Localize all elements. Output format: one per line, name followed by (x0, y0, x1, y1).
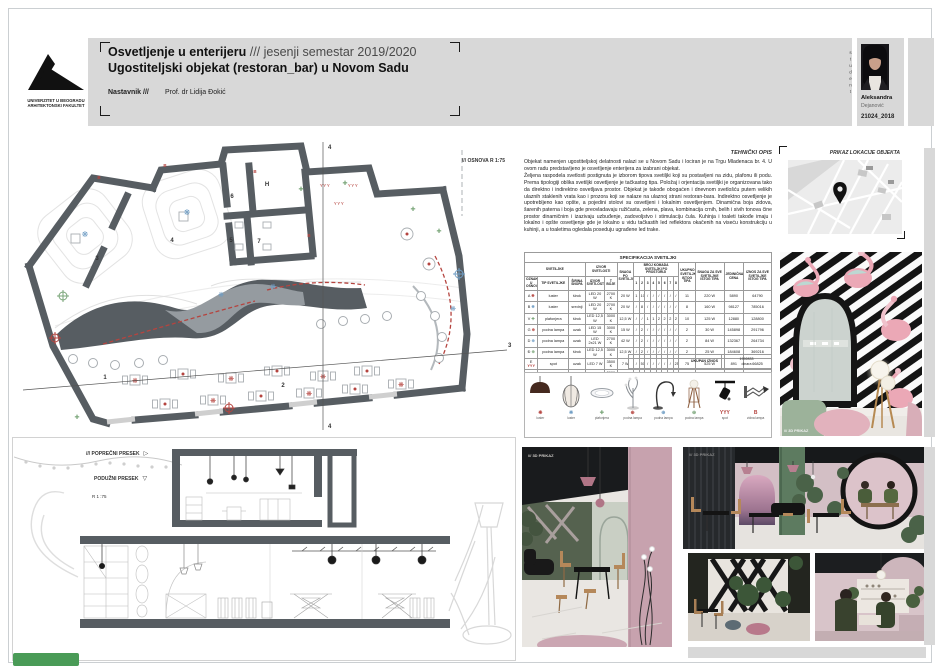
svg-text:❋: ❋ (398, 381, 404, 389)
transverse-section-drawing (172, 449, 357, 534)
student-last-name: Dejanović (861, 103, 884, 109)
page-title: Osvetljenje u enterijeru /// jesenji sem… (108, 45, 417, 59)
render-caption: /// 3D PRIKAZ (689, 452, 715, 457)
svg-text:❋: ❋ (270, 283, 276, 291)
svg-text:1: 1 (103, 375, 107, 381)
student-id: 21024_2018 (861, 114, 894, 120)
student-vertical-label: student (848, 50, 853, 96)
scissor-wall-lamp-icon (743, 376, 769, 410)
svg-text:YYY: YYY (334, 201, 345, 206)
faculty-logo-caption: UNIVERZITET U BEOGRADU ARHITEKTONSKI FAK… (10, 98, 102, 109)
spec-table-row: A ❋ luster širok LED 20 W 2700 K 20 W 11… (525, 290, 772, 301)
lamp-caption: podna lampa (654, 417, 672, 421)
title-suffix: /// jesenji semestar 2019/2020 (250, 45, 417, 59)
lamp-item: ❋ luster (525, 373, 556, 437)
sculptural-floor-lamp-icon (620, 376, 646, 410)
lamp-legend-panel: ❋ luster ❋ luster ✚ plafonjera (524, 372, 772, 438)
title-main: Osvetljenje u enterijeru (108, 45, 246, 59)
lamp-item: ⊕ podna lampa (617, 373, 648, 437)
render-interior-pattern-wall (688, 553, 810, 641)
bottom-accent-bar (688, 647, 926, 658)
section-mark: 4 (328, 145, 332, 151)
section-scale-label: R 1 :75 (92, 494, 107, 499)
total-sum-label: UKUPAN IZNOS (628, 354, 722, 369)
svg-text:4: 4 (170, 238, 174, 244)
pendant-cage-lamp-icon (558, 376, 584, 410)
total-sum-row: UKUPAN IZNOS 1992833 dinara (628, 354, 772, 369)
map-title: PRIKAZ LOKACIJE OBJEKTA (788, 150, 900, 156)
lamp-caption: luster (536, 417, 544, 421)
suspended-track (292, 547, 436, 551)
page-subtitle: Ugostiteljski objekat (restoran_bar) u N… (108, 61, 409, 75)
pendant-dome-lamp-icon (527, 376, 553, 410)
spec-table-row: D ⊕ podna lampa uzak LED 2x21 W 2700 K 4… (525, 336, 772, 347)
plant-lamp-sketch (445, 495, 513, 653)
svg-text:7: 7 (257, 239, 261, 245)
teacher-name: Prof. dr Lidija Đokić (165, 89, 226, 96)
svg-text:❋: ❋ (184, 208, 191, 217)
lamp-item: ✚ plafonjera (587, 373, 618, 437)
section-mark: 4 (328, 424, 332, 430)
section-pendants (207, 456, 295, 489)
svg-text:✚: ✚ (410, 206, 415, 213)
spec-table-row: V ✚ plafonjera širok LED 12,5 W 3000 K 1… (525, 313, 772, 324)
render-flamingo-wall: /// 3D PRIKAZ (780, 252, 922, 436)
svg-text:❋: ❋ (218, 291, 224, 299)
svg-text:❋: ❋ (228, 375, 234, 383)
svg-text:YYY: YYY (348, 183, 359, 188)
ceiling-ring-lamp-icon (589, 376, 615, 410)
tech-paragraph: Objekat namenjen ugostiteljskoj delatnos… (524, 159, 772, 172)
right-accent-strip (924, 447, 935, 645)
longitudinal-section-label: PODUŽNI PRESEK▽ (94, 475, 147, 482)
render-caption: /// 3D PRIKAZ (784, 429, 809, 433)
presentation-board: UNIVERZITET U BEOGRADU ARHITEKTONSKI FAK… (0, 0, 940, 671)
logo-line2: ARHITEKTONSKI FAKULTET (10, 103, 102, 108)
footer-badge (13, 653, 79, 666)
lamp-item: ❋ luster (556, 373, 587, 437)
svg-text:❋: ❋ (306, 390, 312, 398)
svg-text:B: B (253, 169, 257, 174)
spec-table-row: B ❋ luster srednji LED 20 W 2700 K 20 W … (525, 302, 772, 313)
long-section-furniture (262, 544, 416, 619)
tech-paragraph: Željena raspodela svetlosti postignuta j… (524, 173, 772, 233)
transverse-section-label: /// POPREČNI PRESEK▷ (86, 450, 148, 457)
right-accent-strip (924, 148, 935, 437)
tech-description-heading: TEHNIČKI OPIS (524, 150, 772, 156)
svg-text:✚: ✚ (74, 414, 79, 421)
lamp-item: ⊕ podna lampa (679, 373, 710, 437)
lamp-caption: podna lampa (623, 417, 641, 421)
lamp-caption: podna lampa (685, 417, 703, 421)
section-furniture (186, 493, 302, 520)
header-accent-strip (908, 38, 934, 126)
svg-text:❋: ❋ (210, 397, 216, 405)
lamp-item: B zidna lampa (740, 373, 771, 437)
round-window (843, 455, 915, 527)
render-interior-main: /// 3D PRIKAZ (522, 447, 672, 647)
lamp-item: YYY spot (710, 373, 741, 437)
lamp-caption: zidna lampa (747, 417, 764, 421)
crop-mark-icon (450, 106, 460, 116)
arc-floor-lamp-icon (650, 376, 676, 410)
location-map (788, 160, 902, 234)
svg-text:❋: ❋ (82, 230, 89, 239)
tripod-floor-lamp-icon (681, 376, 707, 410)
plan-label: /// OSNOVA R 1:75 (462, 158, 505, 164)
svg-text:6: 6 (230, 194, 234, 200)
section-mark: 3 (508, 343, 512, 349)
student-photo (861, 44, 889, 90)
tech-description: Objekat namenjen ugostiteljskoj delatnos… (524, 159, 772, 235)
render-interior-wide: /// 3D PRIKAZ (683, 447, 930, 549)
spec-table-title: SPECIFIKACIJA SVETILJKI (525, 253, 772, 263)
track-spot-lamp-icon (712, 376, 738, 410)
triangle-down-icon: ▽ (142, 476, 147, 482)
lamp-caption: luster (567, 417, 575, 421)
crop-mark-icon (779, 146, 787, 154)
render-caption: /// 3D PRIKAZ (528, 453, 554, 458)
svg-text:✚: ✚ (436, 228, 441, 235)
svg-text:H: H (265, 182, 269, 188)
floor-plan: ❋ ❋ ❋ ❋ ❋ ❋ ❋ ❋ ❋ ❋ ❋ ✚ ✚ ✚ ✚ ✚ YYY YYY … (15, 138, 515, 434)
arched-mirror (796, 296, 854, 404)
teacher-label: Nastavnik /// (108, 89, 163, 96)
svg-text:YYY: YYY (320, 183, 331, 188)
lamp-caption: spot (722, 417, 728, 421)
decor-curl-sketch (16, 481, 86, 581)
svg-text:❋: ❋ (450, 305, 456, 313)
lamp-item: ⊕ podna lampa (648, 373, 679, 437)
shelving (84, 546, 128, 618)
lamp-caption: plafonjera (595, 417, 609, 421)
faculty-logo-icon (24, 50, 88, 94)
svg-text:2: 2 (281, 383, 285, 389)
render-interior-people (815, 553, 930, 641)
student-first-name: Aleksandra (861, 95, 892, 101)
total-sum-value: 1992833 dinara (722, 354, 772, 369)
svg-text:✚: ✚ (298, 186, 303, 193)
crop-mark-icon (450, 42, 460, 52)
triangle-right-icon: ▷ (144, 451, 149, 457)
longitudinal-section-drawing (80, 536, 450, 628)
teacher-row: Nastavnik /// Prof. dr Lidija Đokić (108, 89, 226, 96)
spec-table-row: G ⊕ podna lampa uzak LED 15 W 3000 K 15 … (525, 324, 772, 335)
